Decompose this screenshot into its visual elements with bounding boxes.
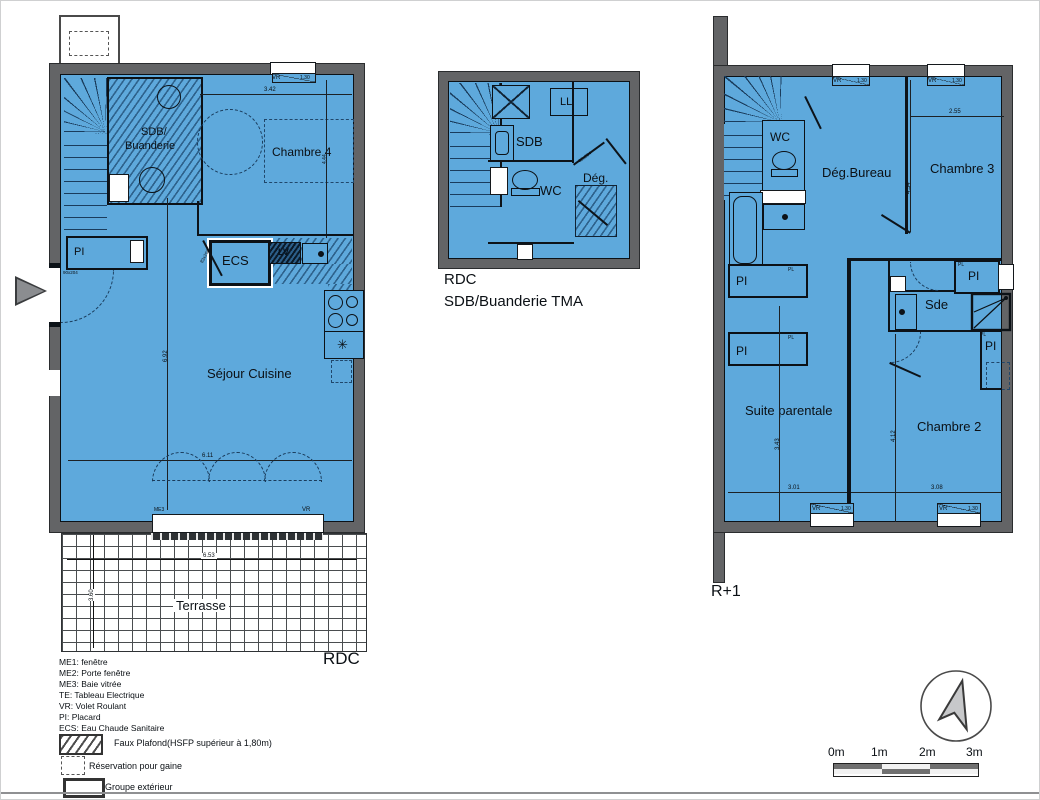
stairs	[724, 124, 762, 200]
door-opening	[490, 167, 508, 195]
toilet-icon	[772, 151, 796, 170]
entry-arrow-fill	[17, 279, 44, 303]
door-opening	[998, 264, 1014, 290]
reservation-gaine-box	[331, 360, 352, 383]
plan-rdc: SDB/ Buanderie Chambre 4 VR 1.30 3.42 4.…	[49, 63, 365, 533]
vr-label: VR	[928, 78, 936, 84]
dim-label: 3.60	[89, 589, 95, 601]
door-opening	[890, 276, 906, 292]
reservation-swatch	[61, 756, 85, 775]
wall-stub	[713, 529, 725, 583]
bathtub	[729, 192, 763, 270]
dim-label: 4.12	[891, 430, 897, 442]
scale-label: 2m	[919, 746, 936, 758]
legend-line: ECS: Eau Chaude Sanitaire	[59, 724, 164, 733]
dim-label: 3.01	[788, 485, 800, 491]
floorplan-sheet: SDB/ Buanderie Chambre 4 VR 1.30 3.42 4.…	[0, 0, 1040, 800]
pi-label: PI	[985, 340, 996, 352]
dim-label: 4.54	[906, 182, 912, 194]
lave-vaisselle: LV	[269, 242, 301, 264]
sink-symbol-box: ✳	[324, 331, 364, 359]
plan-tma-caption-1: RDC	[444, 272, 477, 287]
room-label-deg-bureau: Dég.Bureau	[822, 166, 891, 179]
scale-segment	[882, 769, 930, 774]
door-opening	[130, 240, 144, 263]
groupe-exterieur-swatch	[63, 778, 105, 798]
kitchen-sink	[302, 243, 328, 264]
lv-label: LV	[278, 248, 289, 257]
stairs	[64, 78, 107, 134]
dim-label: 1.30	[857, 79, 867, 84]
washbasin	[763, 204, 805, 230]
washer-icon	[139, 167, 165, 193]
room-label-suite: Suite parentale	[745, 404, 832, 417]
shower-icon	[970, 292, 1012, 332]
burner-icon	[346, 296, 358, 308]
wall-line	[847, 258, 851, 522]
legend-line: TE: Tableau Electrique	[59, 691, 144, 700]
wall-stub	[713, 16, 728, 70]
wall-line	[905, 76, 908, 234]
tap-icon	[782, 214, 788, 220]
pi-label: PI	[74, 247, 84, 258]
pi-label: PI	[736, 345, 747, 357]
dim-label: 3.43	[775, 438, 781, 450]
ll-box: LL	[550, 88, 588, 116]
baie-vitree-opening	[152, 514, 324, 533]
dim-line	[67, 559, 357, 560]
dim-label: 1.30	[841, 507, 851, 512]
turning-circle	[197, 109, 263, 175]
dim-label: 1.30	[968, 507, 978, 512]
dim-label: 3.42	[264, 87, 276, 93]
plan-title-rdc: RDC	[323, 650, 360, 667]
room-label-chambre2: Chambre 2	[917, 420, 981, 433]
scale-bar	[833, 763, 979, 777]
threshold	[151, 533, 323, 540]
wall-line	[197, 201, 199, 236]
burner-icon	[346, 314, 358, 326]
door-jamb	[49, 322, 60, 327]
dim-label: 3.08	[931, 485, 943, 491]
dim-label: 4.44	[323, 154, 328, 164]
stove	[324, 290, 364, 333]
reservation-gaine-box	[69, 31, 109, 56]
basin	[495, 131, 509, 155]
washbasin	[490, 125, 514, 161]
plan-r1: VR 1.30 VR 1.30 WC Dég.Bureau Chambre 3 …	[713, 65, 1013, 533]
north-arrow-icon	[918, 668, 994, 744]
legend-line: ME1: fenêtre	[59, 658, 108, 667]
entry-door-opening	[49, 268, 60, 322]
dim-label: 1.30	[300, 76, 310, 81]
dim-label: 6.53	[201, 553, 217, 559]
room-label-wc: WC	[770, 131, 790, 143]
legend-line: VR: Volet Roulant	[59, 702, 126, 711]
me3-label: ME3	[154, 508, 164, 513]
dim-line	[895, 334, 896, 522]
placard-pi: PI PL	[954, 260, 1000, 294]
window-opening	[937, 513, 981, 527]
room-wc: WC	[762, 120, 805, 192]
wall-line	[488, 160, 574, 162]
tub-inner	[733, 196, 757, 264]
ecs-label: ECS	[222, 254, 249, 267]
wall-line	[197, 234, 353, 236]
plan-tma-caption-2: SDB/Buanderie TMA	[444, 294, 583, 309]
legend-faux-plafond: Faux Plafond(HSFP supérieur à 1,80m)	[114, 739, 272, 748]
ll-label: LL	[560, 97, 572, 108]
reservation-gaine-box	[986, 362, 1010, 390]
pl-label: PL	[980, 333, 986, 338]
pl-label: PL	[958, 263, 964, 268]
stairs	[64, 134, 107, 232]
wall-line	[980, 332, 982, 390]
wall-line	[572, 81, 574, 163]
door-size-label: 90x204	[63, 271, 78, 276]
vr-label: VR	[272, 75, 280, 81]
toilet-tank	[511, 188, 540, 196]
wall-line	[888, 258, 890, 332]
pl-label: PL	[788, 336, 794, 341]
washer-slot	[492, 85, 530, 119]
room-label: Buanderie	[125, 141, 175, 152]
burner-icon	[328, 295, 343, 310]
groupe-exterieur-unit	[59, 15, 120, 66]
dim-line	[728, 492, 847, 493]
dim-label: 6.92	[163, 350, 169, 362]
dim-line	[910, 80, 911, 232]
dim-line	[910, 116, 1004, 117]
dim-line	[851, 492, 1002, 493]
scale-label: 3m	[966, 746, 983, 758]
room-label: SDB/	[141, 127, 167, 138]
scale-segment	[930, 769, 978, 774]
vr-label: VR	[302, 507, 310, 513]
room-label-sde: Sde	[925, 298, 948, 311]
washbasin	[895, 294, 917, 330]
placard-pi: PI PL	[728, 264, 808, 298]
plan-title-r1: R+1	[711, 584, 741, 600]
dim-label: 6.11	[202, 453, 213, 459]
window-opening	[49, 370, 60, 396]
faux-plafond-zone	[575, 185, 617, 237]
room-label-chambre3: Chambre 3	[930, 162, 994, 175]
door-opening	[109, 174, 129, 202]
door-opening	[517, 244, 533, 260]
legend-line: PI: Placard	[59, 713, 101, 722]
scale-label: 1m	[871, 746, 888, 758]
scale-label: 0m	[828, 746, 845, 758]
wall-line	[980, 388, 1002, 390]
washer-icon	[157, 85, 181, 109]
toilet-tank	[771, 169, 798, 177]
plan-tma: LL SDB WC Dég. 83x204	[438, 71, 640, 269]
dim-line	[200, 94, 352, 95]
room-label-sejour: Séjour Cuisine	[207, 367, 292, 380]
tap-icon	[318, 251, 324, 257]
terrasse-label: Terrasse	[173, 599, 229, 612]
vr-label: VR	[833, 78, 841, 84]
vr-label: VR	[939, 506, 947, 512]
room-label-wc: WC	[540, 184, 562, 197]
legend-line: ME2: Porte fenêtre	[59, 669, 130, 678]
stairs	[724, 76, 782, 124]
dim-line	[779, 306, 780, 522]
ecs-box: ECS	[209, 240, 271, 286]
pl-label: PL	[788, 268, 794, 273]
placard-pi: PI PL	[728, 332, 808, 366]
shelf	[760, 190, 806, 204]
sink-asterisk: ✳	[337, 338, 348, 351]
door-jamb	[49, 263, 60, 268]
faux-plafond-swatch	[59, 734, 103, 755]
vr-label: VR	[812, 506, 820, 512]
legend-groupe: Groupe extérieur	[105, 783, 173, 792]
room-label-sdb: SDB	[516, 135, 543, 148]
tap-icon	[899, 309, 905, 315]
terrasse	[61, 533, 367, 652]
pi-label: PI	[968, 270, 979, 282]
room-label-deg: Dég.	[583, 172, 608, 184]
page-bottom-rule	[1, 792, 1039, 794]
dim-label: 1.30	[952, 79, 962, 84]
toilet-icon	[512, 170, 538, 190]
dim-label: 2.55	[949, 109, 961, 115]
scale-segment	[834, 769, 882, 774]
legend-reservation: Réservation pour gaine	[89, 762, 182, 771]
window-opening	[810, 513, 854, 527]
burner-icon	[328, 313, 343, 328]
legend-line: ME3: Baie vitrée	[59, 680, 121, 689]
pi-label: PI	[736, 275, 747, 287]
